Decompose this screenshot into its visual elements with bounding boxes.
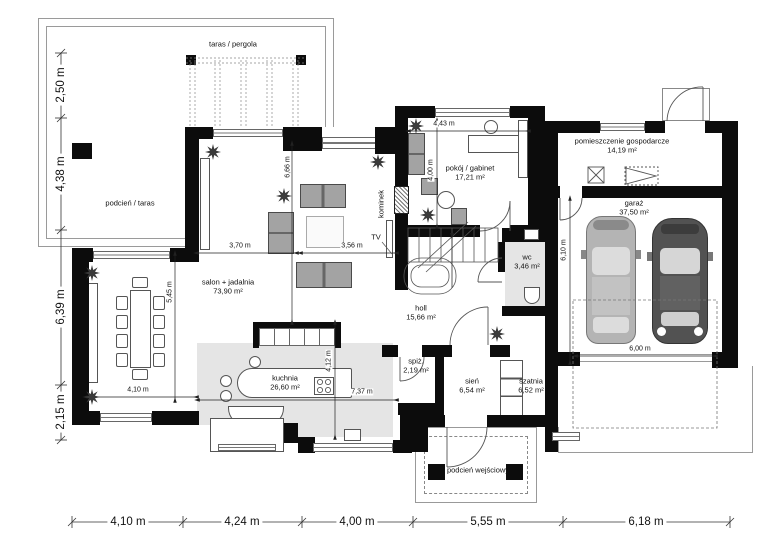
car-light	[694, 327, 703, 336]
door-recess	[662, 88, 710, 121]
wall-segment	[545, 186, 560, 198]
pergola-post	[296, 55, 306, 65]
wall-segment	[395, 106, 408, 146]
sofa	[408, 133, 425, 175]
armchair	[268, 212, 294, 254]
room-label-taras-pergola: taras / pergola	[209, 39, 257, 48]
tv-cabinet	[386, 220, 393, 258]
terrace-outline	[46, 238, 185, 239]
chair	[116, 353, 128, 367]
room-label-garaz: garaż37,50 m²	[619, 199, 649, 218]
wall-segment	[545, 133, 558, 186]
toilet	[524, 287, 540, 304]
car-roof	[592, 277, 630, 315]
window	[313, 443, 393, 452]
chair	[153, 296, 165, 310]
wall-segment	[382, 345, 398, 357]
car	[586, 216, 636, 344]
wall-segment	[490, 345, 510, 357]
wall-segment	[498, 242, 505, 272]
chair	[153, 334, 165, 348]
terrace-outline	[46, 26, 47, 239]
dimension-chain-label: 5,55 m	[467, 516, 508, 528]
wall-segment	[582, 186, 722, 198]
dimension-label: 6,00 m	[628, 346, 651, 353]
chair	[116, 296, 128, 310]
wall-segment	[435, 357, 444, 403]
room-label-wc: wc3,46 m²	[514, 253, 539, 272]
garage-door	[580, 354, 712, 355]
dimension-label: 6,10 m	[561, 238, 568, 261]
driveway-outline	[558, 452, 753, 453]
dimension-label: 6,66 m	[285, 155, 292, 178]
dimension-chain-label: 2,50 m	[55, 64, 67, 105]
wall-segment	[395, 225, 480, 237]
garage-door	[580, 361, 712, 362]
coffee-table	[437, 191, 455, 209]
desk-chair	[484, 120, 498, 134]
sofa	[300, 184, 346, 208]
wall-segment	[335, 322, 341, 348]
car	[652, 218, 708, 344]
chair	[153, 353, 165, 367]
dimension-chain-label: 4,00 m	[336, 516, 377, 528]
window	[100, 413, 152, 422]
wall-segment	[185, 127, 199, 253]
window	[435, 108, 510, 117]
wall-segment	[395, 142, 408, 186]
porch-post	[428, 464, 445, 480]
window	[600, 123, 645, 131]
car-windshield	[592, 247, 630, 275]
armchair	[451, 208, 467, 225]
pergola	[186, 58, 306, 127]
window	[213, 129, 283, 137]
terrace-outline	[333, 18, 334, 142]
window	[93, 251, 170, 259]
car-mirror	[708, 252, 713, 261]
room-label-spiz: spiż.2,19 m²	[403, 357, 428, 376]
wall-segment	[558, 352, 580, 366]
sofa	[296, 262, 352, 288]
wall-segment	[422, 345, 452, 357]
dining-table	[130, 290, 151, 368]
wall-segment	[722, 133, 738, 368]
dimension-label: 3,56 m	[340, 243, 363, 250]
tv-label: TV	[371, 232, 381, 241]
driveway-outline	[752, 366, 753, 453]
appliance	[344, 429, 361, 441]
car-roof	[660, 276, 700, 310]
dimension-label: 7,37 m	[350, 389, 373, 396]
terrace-pillar	[72, 143, 92, 159]
bookshelf	[518, 120, 528, 178]
wall-segment	[528, 106, 545, 232]
dimension-label: 4,12 m	[326, 349, 333, 372]
dimension-label: 3,70 m	[228, 243, 251, 250]
car-hood	[593, 220, 629, 230]
car-light	[657, 327, 666, 336]
room-label-salon: salon + jadalnia73,90 m²	[202, 278, 254, 297]
wall-segment	[400, 415, 428, 452]
dimension-label: 4,43 m	[432, 121, 455, 128]
bar-stool	[220, 375, 232, 387]
bar-stool	[249, 356, 261, 368]
rug	[306, 216, 344, 248]
chair	[132, 369, 148, 380]
wall-segment	[72, 262, 89, 425]
wall-segment	[398, 403, 444, 415]
fireplace-label: kominek	[376, 190, 385, 218]
floor-plan: taras / pergola podcień / taras salon + …	[0, 0, 759, 550]
chair	[153, 315, 165, 329]
car-rear-window	[593, 317, 629, 333]
wall-segment	[152, 411, 199, 425]
window-glazing	[200, 158, 210, 250]
room-label-szatnia: szatnia6,52 m²	[518, 377, 543, 396]
dimension-label: 4,10 m	[126, 387, 149, 394]
car-windshield	[660, 248, 700, 274]
wall-segment	[283, 127, 322, 151]
room-label-podcien-wejsciowy: podcień wejściowy	[447, 465, 509, 474]
wall-segment	[545, 121, 600, 133]
car-mirror	[647, 252, 652, 261]
dimension-chain-label: 2,15 m	[55, 391, 67, 432]
window	[218, 444, 276, 451]
room-label-podcien-taras: podcień / taras	[105, 198, 154, 207]
terrace-outline	[46, 26, 326, 27]
wall-segment	[185, 127, 213, 139]
wall-segment	[705, 121, 738, 133]
room-label-sien: sień6,54 m²	[459, 377, 484, 396]
terrace-outline	[325, 26, 326, 142]
terrace-outline	[38, 246, 185, 247]
chair	[116, 315, 128, 329]
dimension-chain-label: 4,10 m	[107, 516, 148, 528]
wall-segment	[502, 306, 558, 316]
room-label-kuchnia: kuchnia26,60 m²	[270, 374, 300, 393]
cooktop	[314, 377, 334, 395]
wall-segment	[487, 415, 545, 427]
dimension-label: 5,45 m	[167, 280, 174, 303]
wall-segment	[428, 415, 445, 427]
car-sunroof	[661, 224, 699, 234]
dimension-label: 4,00 m	[428, 158, 435, 181]
car-mirror	[581, 250, 586, 259]
car-mirror	[636, 250, 641, 259]
wall-segment	[645, 121, 665, 133]
room-label-holl: holl15,66 m²	[406, 304, 436, 323]
desk	[468, 135, 522, 153]
dimension-chain-label: 6,18 m	[625, 516, 666, 528]
wall-segment	[712, 352, 738, 368]
fireplace	[394, 186, 409, 214]
pergola-post	[186, 55, 196, 65]
chair	[132, 277, 148, 288]
car-rear-window	[661, 312, 699, 326]
room-label-gospodarcze: pomieszczenie gospodarcze14,19 m²	[575, 137, 670, 156]
dimension-chain-label: 4,38 m	[55, 153, 67, 194]
bar-stool	[220, 390, 232, 402]
room-label-pokoj: pokój / gabinet17,21 m²	[446, 164, 495, 183]
wall-segment	[72, 411, 100, 425]
wall-segment	[284, 423, 298, 443]
dimension-chain-label: 6,39 m	[55, 286, 67, 327]
wall-segment	[170, 248, 199, 262]
wall-segment	[72, 248, 93, 262]
window-glazing	[88, 283, 98, 383]
sink-recess	[524, 229, 539, 240]
terrace-outline	[38, 18, 39, 247]
kitchen-counter	[259, 328, 335, 346]
dimension-chain-label: 4,24 m	[221, 516, 262, 528]
window	[552, 432, 580, 441]
terrace-outline	[38, 18, 334, 19]
chair	[116, 334, 128, 348]
